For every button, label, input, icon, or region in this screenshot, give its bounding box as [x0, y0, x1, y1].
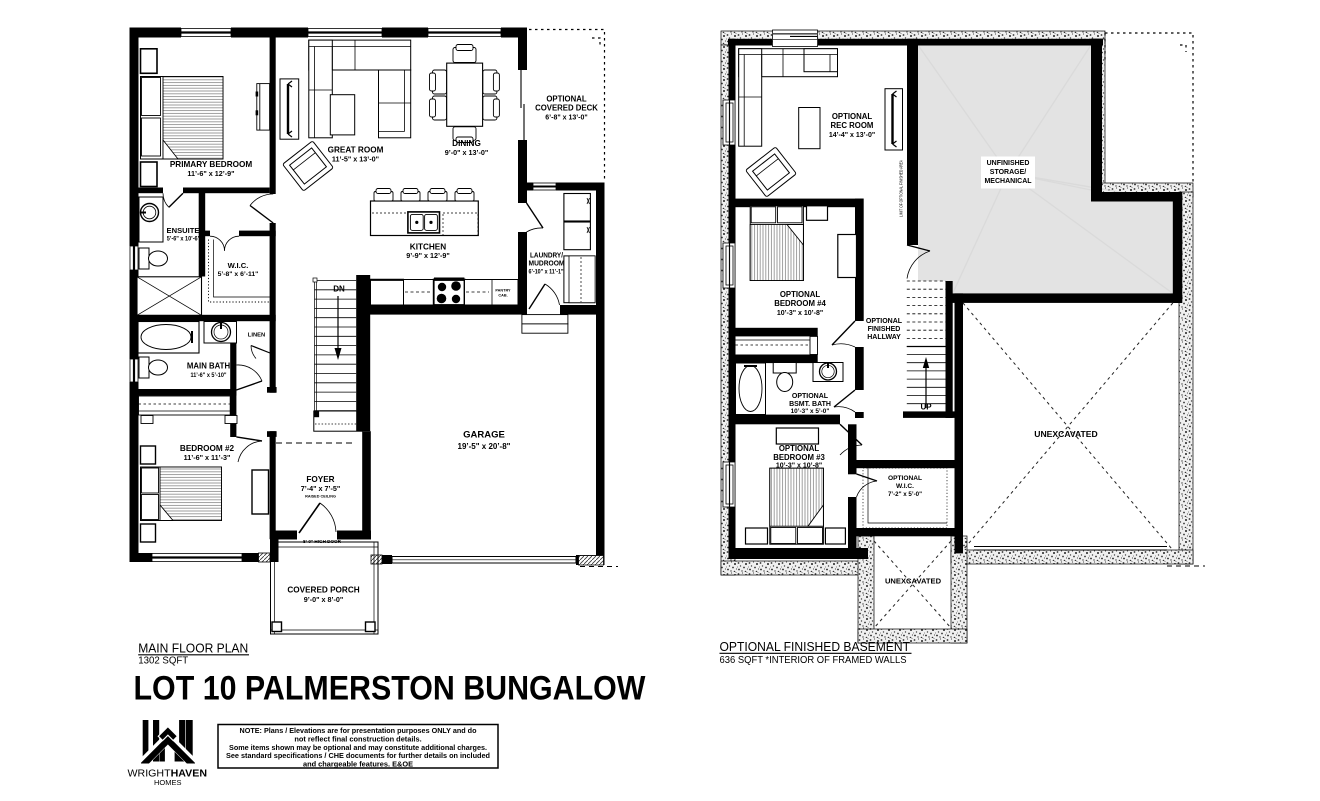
svg-text:MAIN FLOOR PLAN: MAIN FLOOR PLAN [138, 640, 248, 655]
svg-text:6’-8" x 13’-0": 6’-8" x 13’-0" [545, 115, 587, 122]
svg-text:GARAGE: GARAGE [463, 430, 505, 441]
svg-text:6’-10" x 11’-1": 6’-10" x 11’-1" [529, 269, 564, 276]
svg-text:OPTIONAL: OPTIONAL [888, 475, 922, 482]
svg-text:10’-3" x 5’-0": 10’-3" x 5’-0" [791, 408, 830, 415]
svg-text:11’-5" x 13’-0": 11’-5" x 13’-0" [332, 155, 379, 164]
svg-text:14’-4" x 13’-0": 14’-4" x 13’-0" [829, 132, 875, 139]
svg-text:COVERED DECK: COVERED DECK [535, 104, 598, 113]
svg-text:OPTIONAL: OPTIONAL [779, 444, 820, 453]
svg-text:OPTIONAL: OPTIONAL [546, 95, 587, 104]
svg-text:LINEN: LINEN [248, 333, 265, 339]
svg-text:9’-0" x 13’-0": 9’-0" x 13’-0" [445, 148, 489, 157]
svg-text:REC ROOM: REC ROOM [831, 121, 874, 130]
svg-text:5’-8" x 6’-11": 5’-8" x 6’-11" [218, 271, 259, 278]
svg-text:RAISED CEILING: RAISED CEILING [305, 495, 336, 499]
svg-text:BSMT. BATH: BSMT. BATH [789, 401, 831, 408]
svg-text:5’-6" x 10’-6": 5’-6" x 10’-6" [167, 236, 201, 243]
svg-text:BEDROOM #3: BEDROOM #3 [773, 453, 825, 462]
svg-text:DINING: DINING [452, 139, 481, 148]
svg-text:W.I.C.: W.I.C. [228, 261, 249, 270]
svg-text:COVERED PORCH: COVERED PORCH [287, 586, 359, 595]
svg-text:LOT 10 PALMERSTON BUNGALOW: LOT 10 PALMERSTON BUNGALOW [134, 670, 647, 708]
svg-text:STORAGE/: STORAGE/ [990, 169, 1026, 176]
svg-text:BEDROOM #4: BEDROOM #4 [774, 299, 826, 308]
svg-text:636 SQFT *INTERIOR OF FRAMED W: 636 SQFT *INTERIOR OF FRAMED WALLS [720, 655, 907, 666]
svg-text:UNEXCAVATED: UNEXCAVATED [885, 577, 942, 586]
svg-text:8’-0" HIGH DOOR: 8’-0" HIGH DOOR [303, 539, 342, 544]
svg-text:OPTIONAL: OPTIONAL [832, 112, 873, 121]
svg-text:11’-6" x 12’-9": 11’-6" x 12’-9" [187, 169, 234, 178]
svg-text:1302 SQFT: 1302 SQFT [138, 656, 188, 667]
svg-text:OPTIONAL: OPTIONAL [780, 290, 821, 299]
svg-text:UP: UP [920, 403, 932, 412]
svg-text:HALLWAY: HALLWAY [867, 334, 901, 341]
svg-text:PANTRY: PANTRY [495, 289, 511, 293]
svg-text:ENSUITE: ENSUITE [167, 226, 200, 235]
svg-text:WRIGHTHAVEN: WRIGHTHAVEN [128, 769, 208, 780]
svg-text:and chargeable features. E&OE: and chargeable features. E&OE [303, 759, 413, 768]
svg-text:DN: DN [333, 285, 345, 294]
svg-text:OPTIONAL: OPTIONAL [792, 393, 829, 400]
svg-text:11’-6" x 5’-10": 11’-6" x 5’-10" [191, 372, 227, 379]
svg-text:11’-6" x 11’-3": 11’-6" x 11’-3" [184, 453, 231, 462]
svg-text:7’-2" x 5’-0": 7’-2" x 5’-0" [888, 491, 922, 498]
svg-text:OPTIONAL: OPTIONAL [866, 318, 903, 325]
svg-text:W.I.C.: W.I.C. [896, 483, 914, 490]
svg-text:MECHANICAL: MECHANICAL [984, 178, 1032, 185]
svg-text:7’-4" x 7’-5": 7’-4" x 7’-5" [301, 484, 341, 493]
svg-text:10’-3" x 10’-8": 10’-3" x 10’-8" [777, 310, 823, 317]
svg-text:FOYER: FOYER [306, 475, 334, 484]
svg-text:UNEXCAVATED: UNEXCAVATED [1034, 429, 1098, 439]
svg-text:MUDROOM: MUDROOM [529, 259, 565, 268]
svg-text:9’-9" x 12’-9": 9’-9" x 12’-9" [406, 251, 450, 260]
svg-text:HOMES: HOMES [154, 780, 182, 787]
svg-text:19’-5" x 20’-8": 19’-5" x 20’-8" [458, 442, 511, 451]
svg-text:GREAT ROOM: GREAT ROOM [328, 146, 384, 155]
svg-text:OPTIONAL FINISHED BASEMENT: OPTIONAL FINISHED BASEMENT [720, 639, 911, 654]
svg-text:9’-0" x 8’-0": 9’-0" x 8’-0" [304, 595, 344, 604]
svg-text:PRIMARY BEDROOM: PRIMARY BEDROOM [170, 160, 253, 169]
svg-text:FINISHED: FINISHED [868, 326, 901, 333]
svg-text:BEDROOM #2: BEDROOM #2 [180, 444, 235, 453]
svg-text:MAIN BATH: MAIN BATH [187, 362, 231, 371]
svg-text:CAB.: CAB. [498, 294, 507, 298]
svg-text:LIMIT OF OPTIONAL FINISHED ARE: LIMIT OF OPTIONAL FINISHED AREA [899, 160, 904, 217]
svg-text:UNFINISHED: UNFINISHED [987, 160, 1030, 167]
